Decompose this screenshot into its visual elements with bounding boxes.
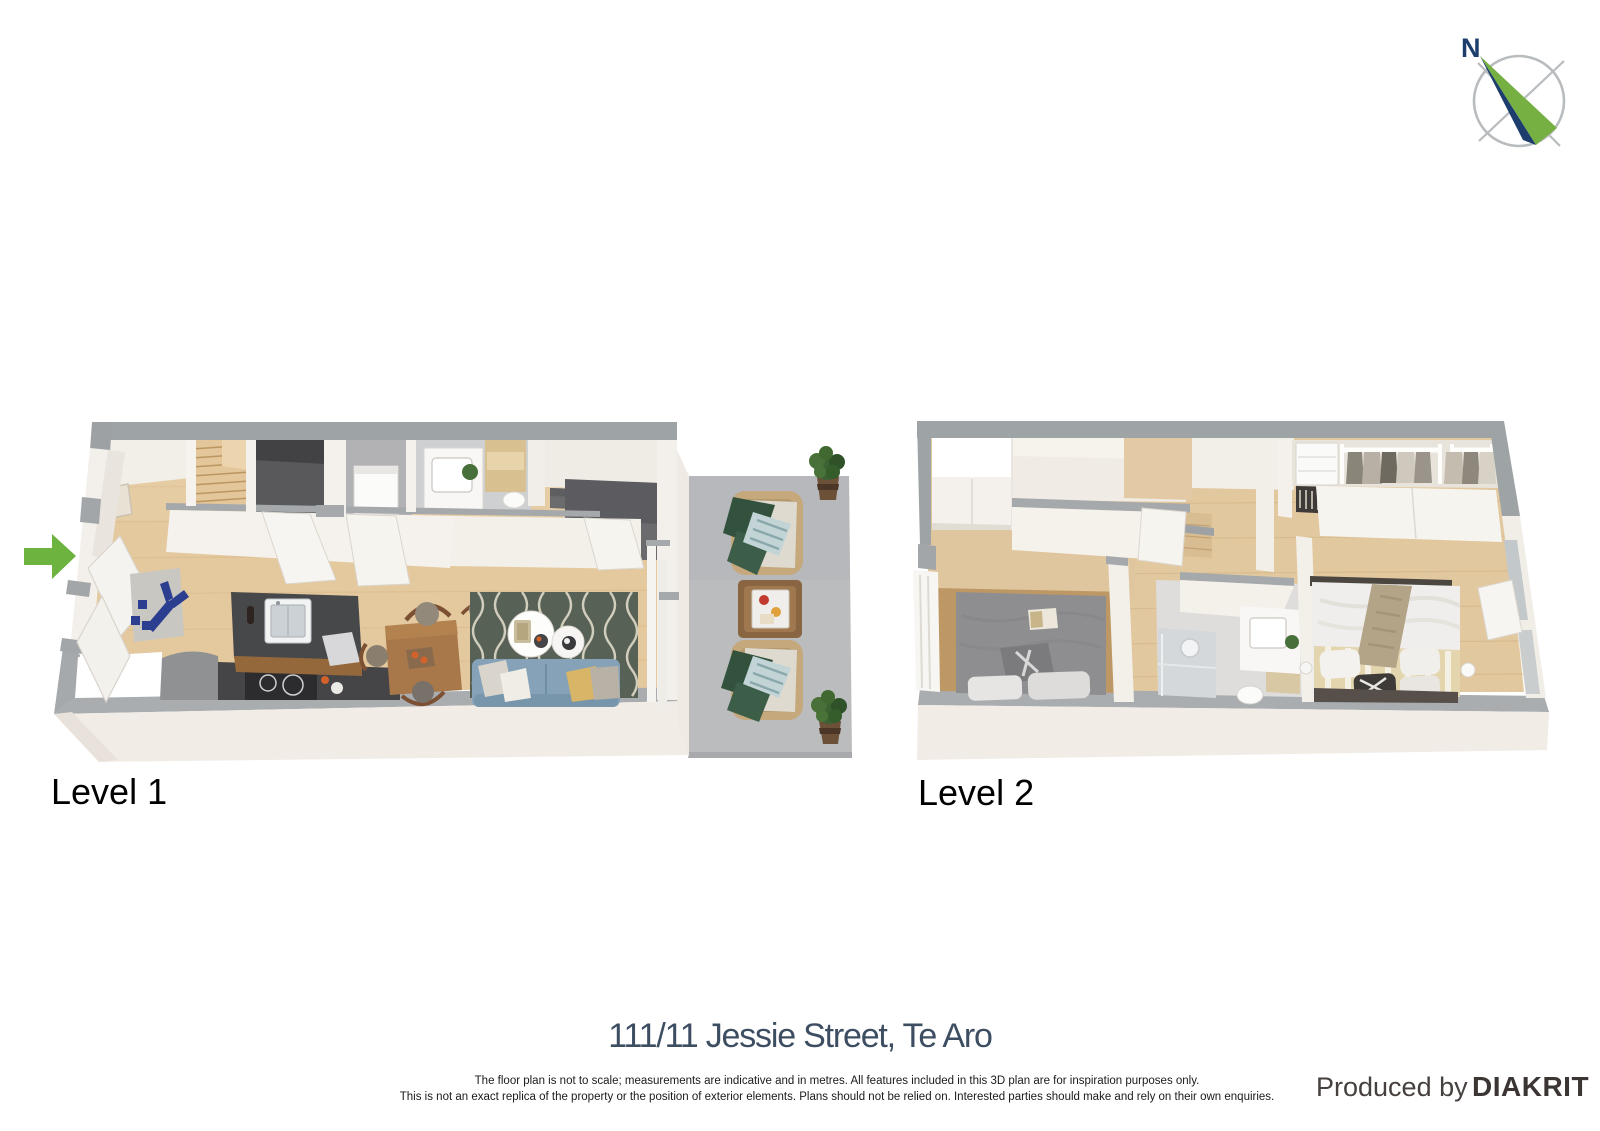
svg-text:DIAKRIT: DIAKRIT xyxy=(1472,1071,1589,1102)
svg-text:Level 1: Level 1 xyxy=(51,771,167,812)
svg-text:111/11 Jessie Street, Te Aro: 111/11 Jessie Street, Te Aro xyxy=(608,1017,992,1055)
svg-text:The floor plan is not to scale: The floor plan is not to scale; measurem… xyxy=(475,1075,1200,1087)
svg-text:This is not an exact replica o: This is not an exact replica of the prop… xyxy=(400,1091,1275,1103)
svg-text:Level 2: Level 2 xyxy=(918,772,1034,813)
svg-text:Produced by: Produced by xyxy=(1316,1072,1468,1102)
svg-text:N: N xyxy=(1461,33,1481,63)
